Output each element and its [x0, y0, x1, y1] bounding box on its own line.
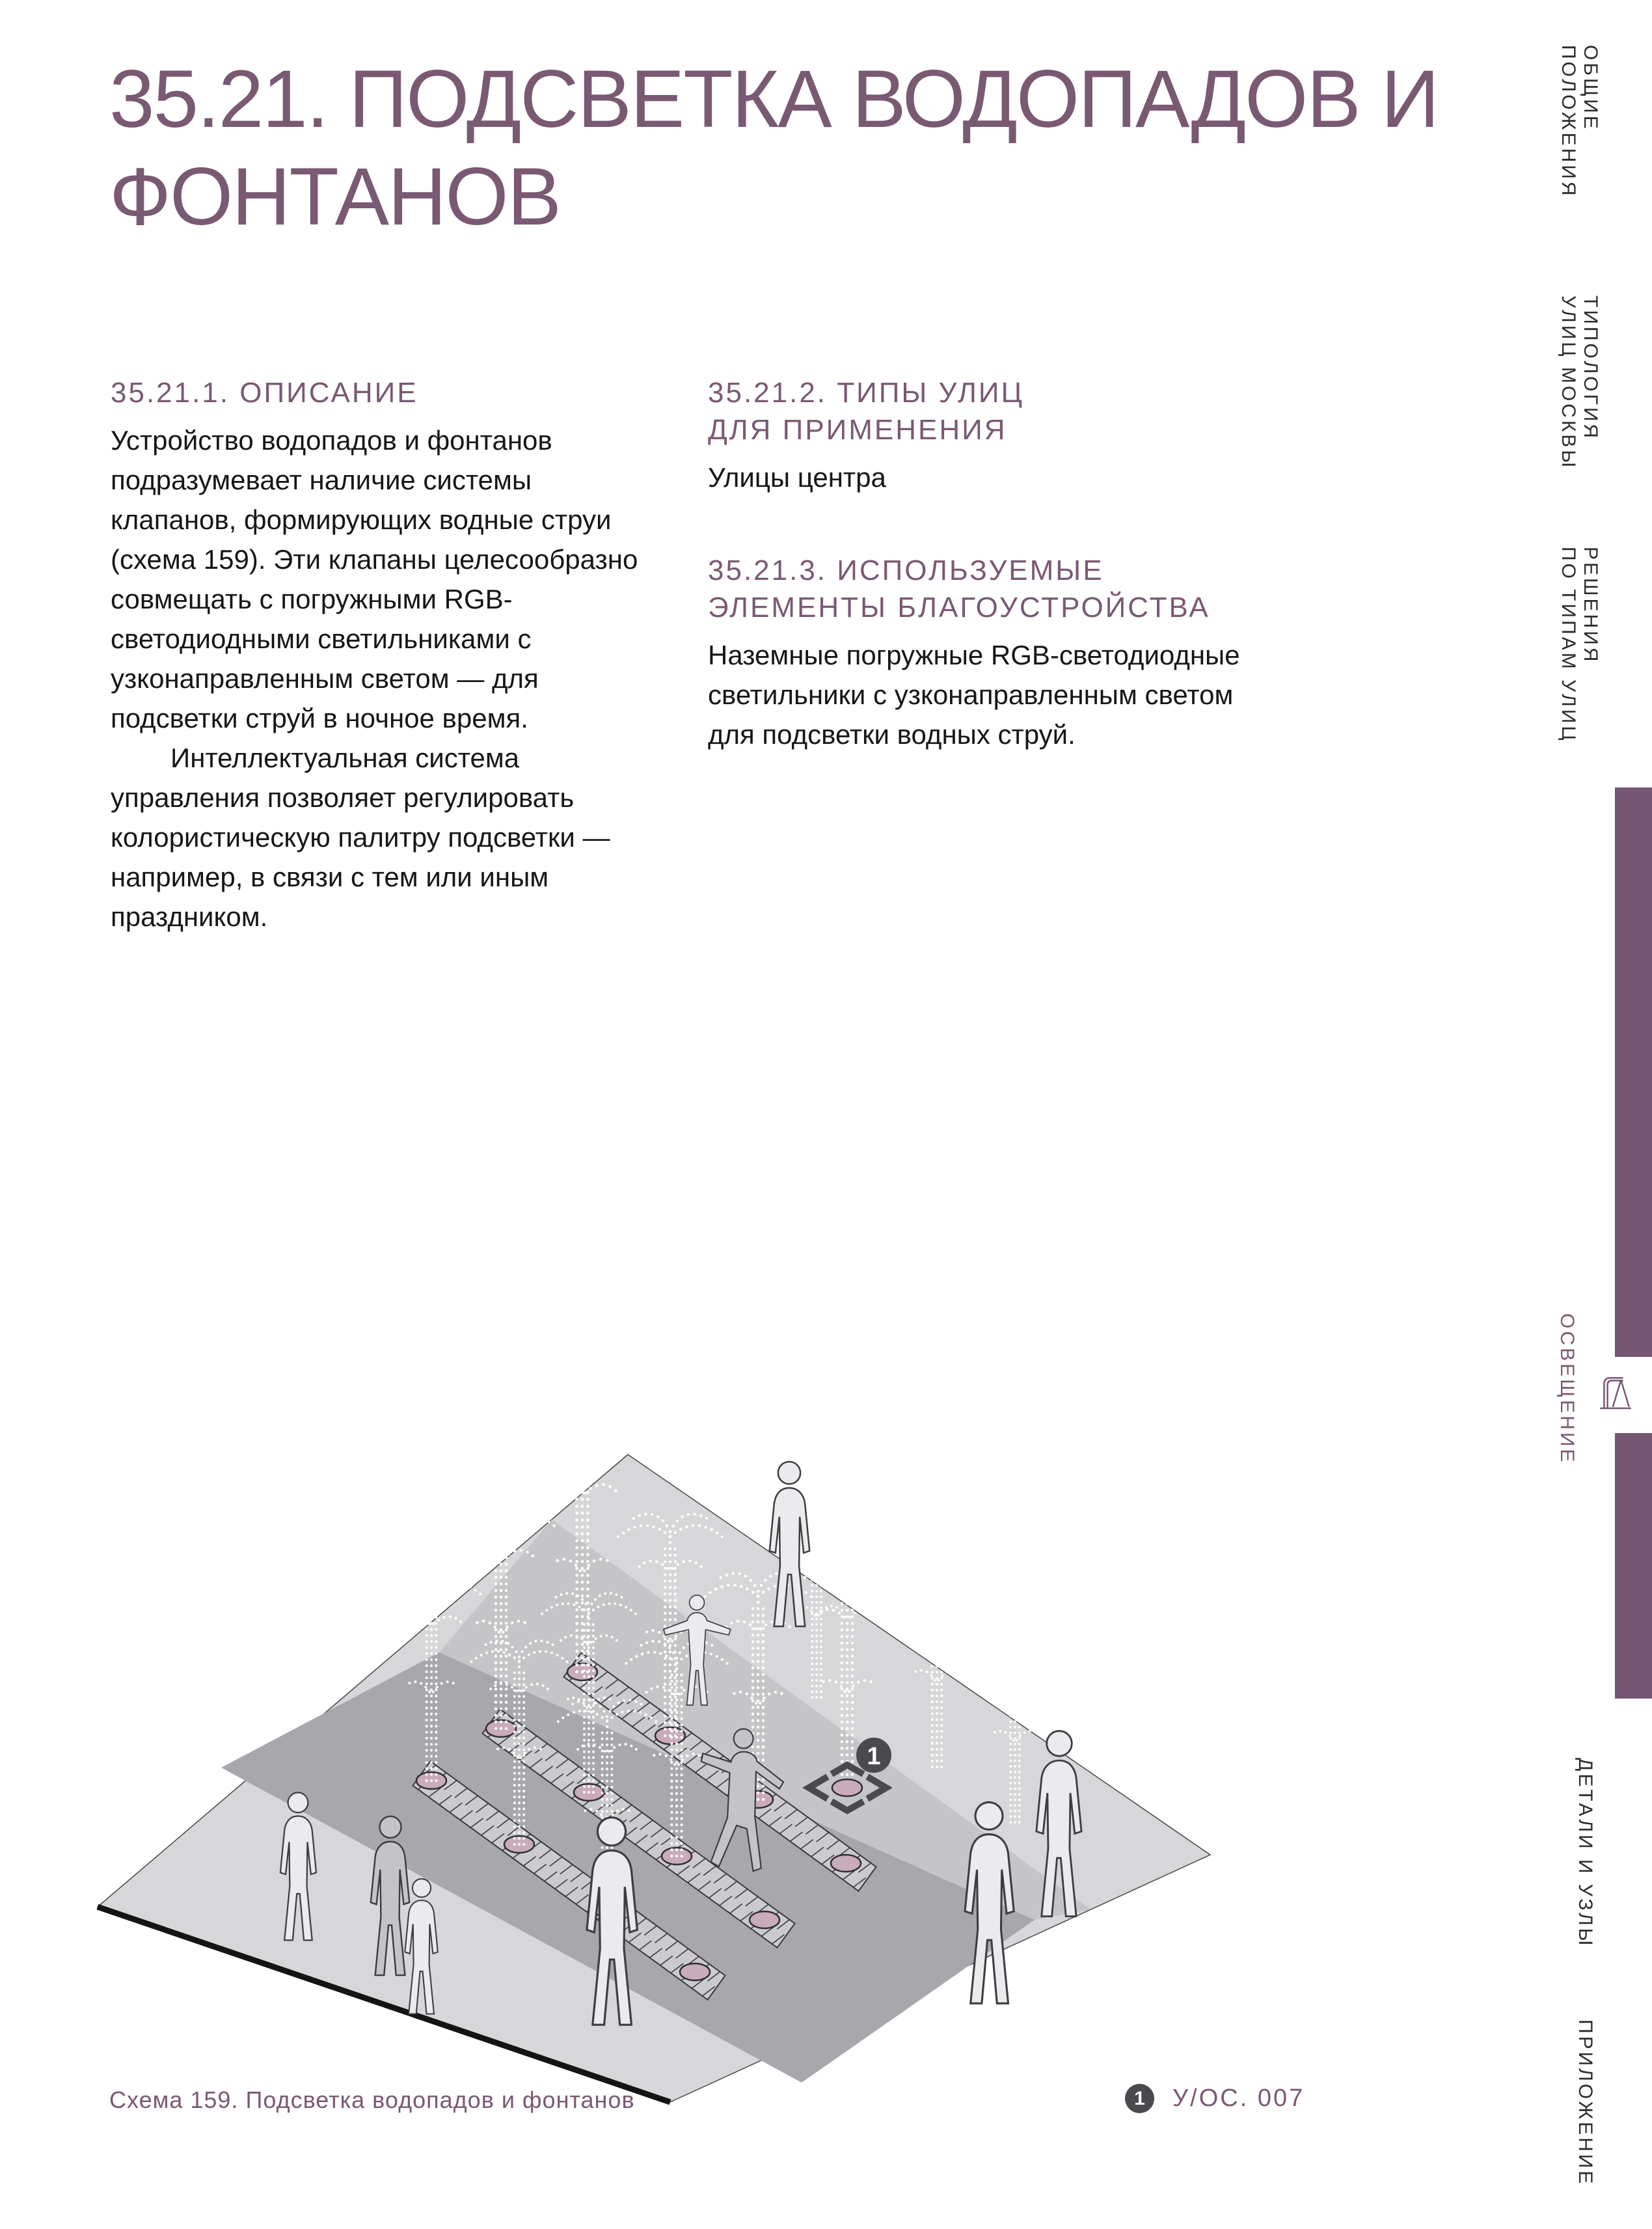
- svg-text:1: 1: [867, 1743, 880, 1770]
- legend-code: У/ОС. 007: [1172, 2085, 1305, 2113]
- sidebar-item-typology[interactable]: ТИПОЛОГИЯ УЛИЦ МОСКВЫ: [1557, 295, 1601, 470]
- fountain-plaza-diagram: 1: [0, 1393, 1652, 2200]
- sidebar-item-solutions[interactable]: РЕШЕНИЯ ПО ТИПАМ УЛИЦ: [1557, 547, 1601, 743]
- legend: 1 У/ОС. 007: [1125, 2084, 1305, 2113]
- page-title: 35.21. ПОДСВЕТКА ВОДОПАДОВ И ФОНТАНОВ: [109, 51, 1515, 246]
- section-1-paragraph-2: Интеллектуальная система управления позв…: [111, 738, 660, 937]
- legend-marker-badge: 1: [1125, 2084, 1154, 2113]
- section-2-body: Улицы центра: [708, 458, 1258, 497]
- figure-caption: Схема 159. Подсветка водопадов и фонтано…: [109, 2086, 635, 2114]
- marker-1-badge: 1: [856, 1738, 891, 1773]
- document-page: { "header": { "title": "35.21. ПОДСВЕТКА…: [0, 0, 1652, 2229]
- section-3-heading: 35.21.3. ИСПОЛЬЗУЕМЫЕ ЭЛЕМЕНТЫ БЛАГОУСТР…: [708, 552, 1258, 626]
- section-3-body: Наземные погружные RGB-светодиодные свет…: [708, 635, 1258, 754]
- section-2-heading: 35.21.2. ТИПЫ УЛИЦ ДЛЯ ПРИМЕНЕНИЯ: [708, 374, 1258, 448]
- active-section-bar-upper: [1615, 787, 1652, 1357]
- section-street-types: 35.21.2. ТИПЫ УЛИЦ ДЛЯ ПРИМЕНЕНИЯ Улицы …: [708, 374, 1258, 754]
- section-description: 35.21.1. ОПИСАНИЕ Устройство водопадов и…: [111, 374, 660, 937]
- sidebar-item-general[interactable]: ОБЩИЕ ПОЛОЖЕНИЯ: [1557, 45, 1601, 198]
- section-1-paragraph-1: Устройство водопадов и фонтанов подразум…: [111, 420, 660, 738]
- section-1-heading: 35.21.1. ОПИСАНИЕ: [111, 374, 660, 411]
